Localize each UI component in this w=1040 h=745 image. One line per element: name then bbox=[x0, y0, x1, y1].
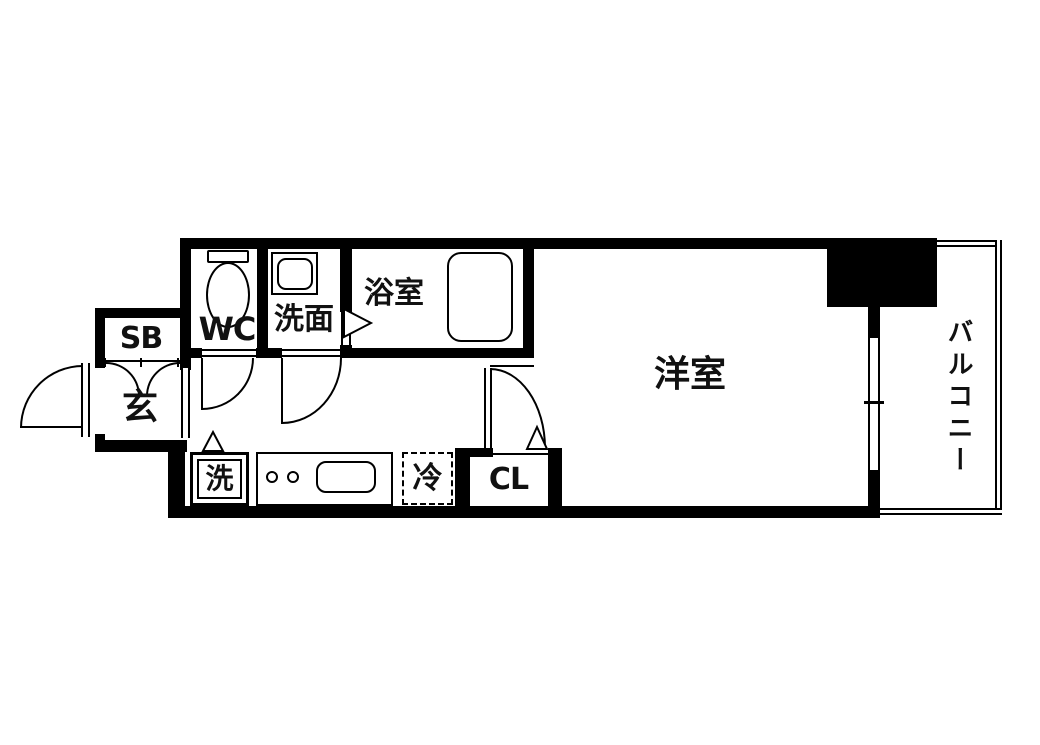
room-label-bathroom: 浴室 bbox=[352, 270, 436, 318]
room-label-entrance: 玄 bbox=[110, 385, 170, 431]
room-label-shoebox: SB bbox=[103, 318, 179, 360]
room-label-western-room: 洋室 bbox=[630, 350, 750, 400]
room-label-balcony: バルコニー bbox=[940, 298, 976, 498]
room-step-triangle bbox=[527, 427, 547, 449]
markers-overlay bbox=[0, 0, 1040, 745]
room-label-closet: CL bbox=[469, 455, 548, 504]
washer-step-triangle bbox=[203, 432, 223, 451]
floor-plan: 洗 冷 SB 玄 WC 洗面 浴室 洋室 CL バルコニー bbox=[0, 0, 1040, 745]
room-label-washroom: 洗面 bbox=[266, 296, 342, 344]
room-label-wc: WC bbox=[196, 306, 258, 352]
